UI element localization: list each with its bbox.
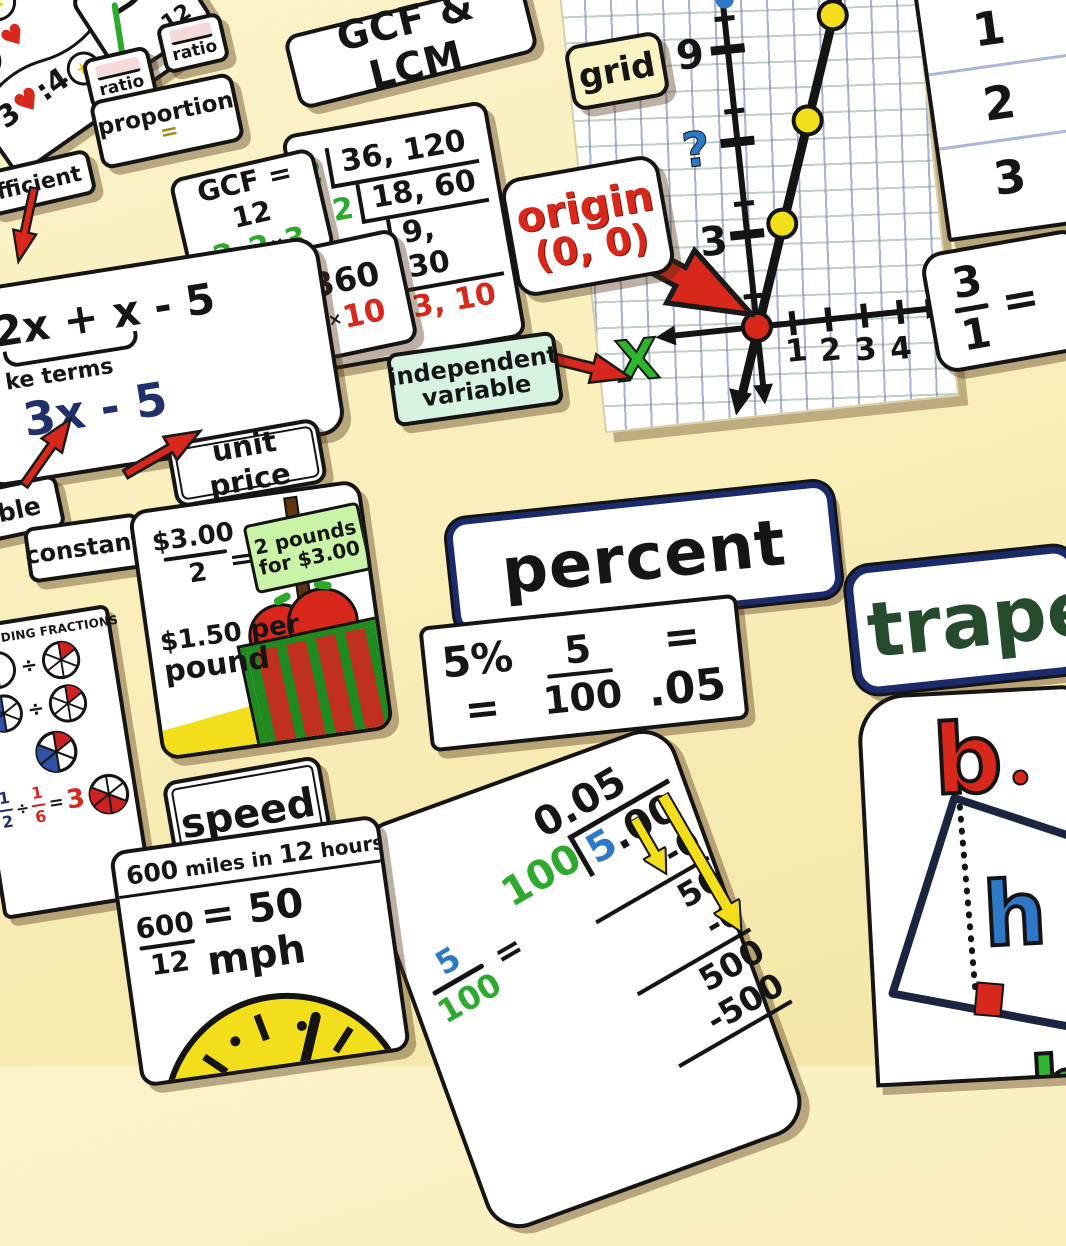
long-division-content: 5100 = 0.05 100 5.00 -0 50 -0 500 -500 [341,712,792,1167]
proportion-equals: = [159,123,180,142]
trapezoid-figure: b h b [860,688,1066,1087]
trapezoid-title-card: trape [844,544,1066,696]
x-axis-arrowhead-left [654,326,676,348]
variable-text: ble [0,490,43,527]
percent-lhs: 5% = [424,630,536,738]
y-axis-blue-tip [715,0,735,9]
one-sixth-fraction: 16 [29,784,49,826]
right-angle-marker [975,982,1004,1016]
pie-mixed-red-blue [31,727,81,777]
gcf-lcm-title-card: GCF & LCM [282,0,539,111]
equals-sign: = [47,791,65,814]
pie-sixth-red [45,681,91,727]
pie-sixth-red [38,637,84,683]
data-point [817,0,848,31]
result-number: 3 [64,783,87,815]
y-axis-arrowhead-bottom [753,384,775,406]
trapezoid-title-text: trape [853,562,1066,676]
percent-rhs: = .05 [624,606,744,719]
divide-sign: ÷ [19,652,39,678]
gauge-face [150,980,409,1088]
speed-fraction: 60012 [134,908,201,981]
divide-sign: ÷ [26,695,46,721]
x-tick-label-3: 3 [853,331,878,369]
x-tick-label-1: 1 [784,332,809,370]
heart-icon: ♥ [0,16,34,57]
data-point [767,208,798,239]
speed-card: 600 miles in 12 hours 60012 = 50 mph [109,814,411,1088]
equals-sign: = [998,271,1043,328]
constant-text: constant [23,526,144,570]
unit-price-fraction: $3.002 [150,519,240,592]
price-sign: 2 pounds for $3.00 [242,501,372,594]
base1-subscript-dot [1013,770,1028,785]
height-label: h [981,860,1049,966]
base1-label: b [930,702,1004,817]
x-tick-label-4: 4 [888,330,913,368]
curve-stroke [88,0,164,17]
trapezoid-figure-card: b h b [856,685,1066,1088]
grid-text: grid [576,45,659,98]
percent-text: percent [498,506,789,609]
long-division-card: 5100 = 0.05 100 5.00 -0 50 -0 500 -500 [351,720,812,1238]
y-tick-label-9: 9 [674,31,706,80]
classroom-wall-photo: { "palette":{"wall":"#f8efbb","red":"#d8… [0,0,1066,1066]
row-number: 3 [990,148,1029,206]
pie-half-blue [0,647,20,693]
one-half-fraction: 12 [0,790,16,832]
y-tick-label-question: ? [679,121,713,180]
gcf-lcm-title: GCF & LCM [285,0,538,116]
pie-three-sixths-blue [0,691,27,737]
divide-sign: ÷ [14,797,30,818]
row-number: 1 [969,0,1008,57]
percent-fraction: 5100 [536,626,624,720]
pie-three-sixths-red [84,769,133,819]
row-number: 2 [980,74,1019,132]
fraction-3-over-1: 31 [947,258,997,357]
base2-label: b [1028,1037,1066,1087]
unit-price-card: $3.002 = 2 pounds for $3.00 $1.50 per po… [128,479,395,761]
data-point [792,105,823,136]
x-tick-label-2: 2 [818,331,843,369]
